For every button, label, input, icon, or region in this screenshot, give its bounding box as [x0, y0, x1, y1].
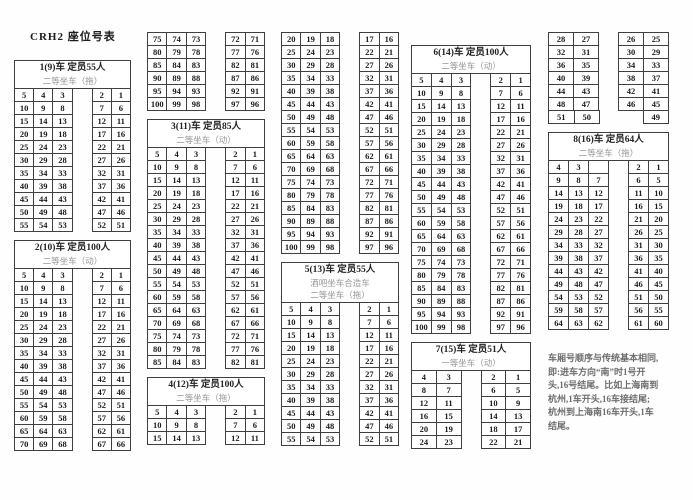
seat-row: 98765	[548, 173, 669, 187]
seat-cell: 40	[281, 84, 301, 98]
seat-cell: 30	[281, 367, 301, 381]
seat-cell: 53	[52, 398, 72, 412]
seat-cell: 66	[379, 162, 399, 176]
seat-cell: 61	[510, 229, 531, 243]
seat-row: 1211109	[411, 396, 531, 410]
seat-cell: 53	[568, 290, 589, 304]
aisle-gap	[206, 329, 226, 343]
seat-row: 9089888786	[147, 71, 265, 85]
seat-cell: 23	[52, 320, 72, 334]
seat-cell: 11	[510, 99, 531, 113]
car-seat-table: 5(13)车 定员55人酒吧坐车合造车二等坐车（拖）54321109876151…	[281, 262, 399, 446]
aisle-gap	[340, 328, 360, 342]
seat-cell: 26	[618, 32, 644, 46]
seat-cell: 48	[568, 277, 589, 291]
seat-cell: 15	[147, 173, 167, 187]
seat-cell: 30	[14, 333, 34, 347]
seat-row: 1514131211	[14, 294, 131, 308]
seat-row: 5049484746	[14, 205, 131, 219]
seat-row: 10099989796	[411, 320, 531, 334]
aisle-gap	[471, 112, 491, 126]
seat-cell: 58	[52, 411, 72, 425]
seat-cell: 59	[33, 411, 53, 425]
seat-row: 2524232221	[147, 199, 265, 213]
seat-row: 1514131211	[147, 173, 265, 187]
aisle-gap	[73, 205, 93, 219]
seat-cell: 20	[14, 307, 34, 321]
seat-cell: 81	[379, 201, 399, 215]
seat-cell: 3	[320, 302, 340, 316]
seat-cell: 18	[52, 127, 72, 141]
seat-cell: 87	[359, 214, 379, 228]
seat-cell: 54	[548, 290, 569, 304]
seat-cell: 48	[320, 110, 340, 124]
seat-row: 109876	[281, 315, 399, 329]
aisle-gap	[462, 396, 482, 410]
seat-cell: 47	[490, 190, 511, 204]
seat-cell: 55	[147, 277, 167, 291]
seat-cell: 11	[379, 328, 399, 342]
seat-cell: 42	[359, 97, 379, 111]
seat-row: 6059585756	[411, 216, 531, 230]
seat-cell: 82	[225, 58, 245, 72]
seat-row: 6463626160	[548, 316, 669, 330]
car-seat-table: 2827262532313029363534334039383744434241…	[548, 32, 669, 124]
seat-cell: 21	[245, 199, 265, 213]
seat-cell: 7	[92, 101, 112, 115]
seat-cell: 62	[225, 303, 245, 317]
seat-cell: 49	[300, 419, 320, 433]
seat-cell: 45	[281, 406, 301, 420]
seat-cell: 10	[281, 315, 301, 329]
seat-cell: 12	[588, 186, 609, 200]
car-seat-table: 7(15)车 定员51人一等坐车（动）432187651211109161514…	[411, 342, 531, 449]
seat-row: 2524232221	[14, 140, 131, 154]
seat-cell: 2	[359, 302, 379, 316]
seat-cell: 60	[411, 216, 432, 230]
seat-cell: 16	[379, 32, 399, 46]
seat-row: 1514131211	[411, 99, 531, 113]
aisle-gap	[206, 199, 226, 213]
seat-cell: 55	[14, 218, 34, 232]
seat-cell: 28	[52, 333, 72, 347]
aisle-gap	[73, 101, 93, 115]
seat-cell: 66	[510, 242, 531, 256]
seat-row: 2928272625	[548, 225, 669, 239]
seat-cell: 30	[147, 212, 167, 226]
aisle-gap	[609, 186, 629, 200]
seat-cell: 24	[431, 125, 452, 139]
seat-cell: 54	[431, 203, 452, 217]
seat-row: 4544434241	[281, 97, 399, 111]
aisle-gap	[609, 199, 629, 213]
empty-cell	[588, 160, 609, 174]
seat-row: 44434241	[548, 84, 669, 98]
seat-cell: 8	[186, 418, 206, 432]
seat-cell: 27	[92, 333, 112, 347]
seat-cell: 92	[225, 84, 245, 98]
seat-cell: 49	[431, 190, 452, 204]
seat-cell: 6	[510, 86, 531, 100]
seat-cell: 29	[33, 333, 53, 347]
seat-cell: 17	[359, 341, 379, 355]
seat-row: 8079787776	[411, 268, 531, 282]
seat-cell: 4	[166, 405, 186, 419]
seat-cell: 43	[568, 264, 589, 278]
seat-row: 2019181716	[281, 341, 399, 355]
seat-cell: 48	[320, 419, 340, 433]
seat-cell: 23	[320, 45, 340, 59]
page-title: CRH2 座位号表	[30, 28, 116, 44]
seat-cell: 10	[648, 186, 669, 200]
seat-row: 2524232221	[14, 320, 131, 334]
seat-cell: 21	[111, 320, 131, 334]
car-title-sub: 二等坐车（动）	[148, 134, 264, 146]
seat-cell: 93	[186, 84, 206, 98]
seat-cell: 46	[628, 277, 649, 291]
aisle-gap	[73, 437, 93, 451]
seat-cell: 51	[245, 277, 265, 291]
seat-cell: 64	[300, 149, 320, 163]
seat-cell: 39	[166, 238, 186, 252]
seat-cell: 46	[618, 97, 644, 111]
seat-cell: 42	[92, 372, 112, 386]
seat-cell: 62	[490, 229, 511, 243]
seat-cell: 61	[628, 316, 649, 330]
seat-row: 4544434241	[14, 192, 131, 206]
seat-row: 4039383736	[14, 179, 131, 193]
seat-cell: 84	[431, 281, 452, 295]
seat-cell: 15	[147, 431, 167, 445]
seat-cell: 86	[510, 294, 531, 308]
seat-cell: 54	[33, 218, 53, 232]
seat-cell: 56	[379, 136, 399, 150]
seat-cell: 29	[300, 58, 320, 72]
seat-cell: 25	[648, 225, 669, 239]
seat-cell: 34	[33, 346, 53, 360]
seat-cell: 25	[14, 140, 34, 154]
seat-cell: 28	[451, 138, 472, 152]
seat-cell: 52	[359, 432, 379, 446]
seat-cell: 38	[618, 71, 644, 85]
seat-cell: 36	[379, 84, 399, 98]
car-title-main: 3(11)车 定员85人	[148, 121, 264, 134]
seat-cell: 50	[14, 385, 34, 399]
seat-cell: 34	[33, 166, 53, 180]
seat-cell: 9	[431, 86, 452, 100]
seat-cell: 8	[186, 160, 206, 174]
seat-cell: 52	[490, 203, 511, 217]
seat-cell: 30	[281, 58, 301, 72]
seat-row: 4039383736	[14, 359, 131, 373]
seat-cell: 22	[359, 45, 379, 59]
seat-cell: 5	[648, 173, 669, 187]
seat-cell: 25	[281, 354, 301, 368]
seat-cell: 48	[451, 190, 472, 204]
seat-cell: 7	[225, 160, 245, 174]
seat-cell: 49	[548, 277, 569, 291]
seat-row: 5554535251	[14, 398, 131, 412]
seat-cell: 76	[245, 342, 265, 356]
seat-cell: 54	[166, 277, 186, 291]
aisle-gap	[206, 84, 226, 98]
seat-cell: 82	[359, 201, 379, 215]
seat-row: 16151413	[411, 409, 531, 423]
seat-cell: 26	[628, 225, 649, 239]
seat-row: 1514131211	[147, 431, 265, 445]
seat-cell: 52	[92, 398, 112, 412]
seat-cell: 11	[628, 186, 649, 200]
seat-cell: 13	[52, 294, 72, 308]
seat-cell: 38	[320, 84, 340, 98]
seat-row: 5049484746	[281, 110, 399, 124]
seat-row: 2019181716	[281, 32, 399, 46]
seat-cell: 16	[411, 409, 437, 423]
seat-cell: 3	[52, 268, 72, 282]
seat-cell: 55	[411, 203, 432, 217]
seat-cell: 94	[166, 84, 186, 98]
legend-note-line: 杭州,1车开头,16车接结尾;	[548, 393, 688, 407]
seat-cell: 6	[379, 315, 399, 329]
aisle-gap	[340, 45, 360, 59]
seat-cell: 33	[186, 225, 206, 239]
seat-cell: 24	[33, 140, 53, 154]
seat-cell: 42	[588, 264, 609, 278]
aisle-gap	[599, 32, 619, 46]
seat-cell: 78	[186, 45, 206, 59]
seat-row: 3534333231	[14, 346, 131, 360]
seat-cell: 1	[245, 147, 265, 161]
seat-cell: 36	[111, 359, 131, 373]
seat-row: 7069686766	[14, 437, 131, 451]
aisle-gap	[73, 140, 93, 154]
seat-cell: 14	[481, 409, 507, 423]
seat-row: 2524232221	[411, 125, 531, 139]
seat-cell: 72	[225, 32, 245, 46]
seat-cell: 42	[618, 84, 644, 98]
seat-cell: 40	[648, 264, 669, 278]
seat-cell: 85	[147, 355, 167, 369]
seat-cell: 6	[111, 101, 131, 115]
seat-cell: 67	[225, 316, 245, 330]
seat-cell: 31	[245, 225, 265, 239]
seat-cell: 35	[14, 166, 34, 180]
seat-row: 9594939291	[147, 84, 265, 98]
seat-cell: 84	[300, 201, 320, 215]
seat-row: 3433323130	[548, 238, 669, 252]
aisle-gap	[73, 346, 93, 360]
car-title-main: 1(9)车 定员55人	[15, 62, 130, 75]
car-seat-table: 4(12)车 定员100人二等坐车（拖）54321109876151413121…	[147, 377, 265, 445]
aisle-gap	[206, 147, 226, 161]
seat-cell: 2	[628, 160, 649, 174]
seat-cell: 83	[186, 58, 206, 72]
seat-cell: 44	[300, 406, 320, 420]
seat-cell: 29	[33, 153, 53, 167]
seat-cell: 43	[52, 372, 72, 386]
seat-cell: 43	[52, 192, 72, 206]
seat-cell: 17	[588, 199, 609, 213]
seat-cell: 46	[510, 190, 531, 204]
seat-cell: 19	[33, 127, 53, 141]
seat-cell: 32	[359, 71, 379, 85]
seat-cell: 44	[33, 372, 53, 386]
seat-cell: 61	[245, 303, 265, 317]
seat-cell: 80	[411, 268, 432, 282]
seat-cell: 6	[245, 418, 265, 432]
seat-cell: 15	[411, 99, 432, 113]
seat-cell: 9	[300, 315, 320, 329]
seat-cell: 45	[648, 277, 669, 291]
aisle-gap	[471, 294, 491, 308]
seat-cell: 67	[490, 242, 511, 256]
aisle-gap	[462, 422, 482, 436]
seat-cell: 75	[411, 255, 432, 269]
aisle-gap	[206, 290, 226, 304]
seat-cell: 14	[300, 328, 320, 342]
seat-cell: 13	[505, 409, 531, 423]
seat-row: 515049	[548, 110, 669, 124]
seat-cell: 35	[147, 225, 167, 239]
seat-cell: 52	[359, 123, 379, 137]
seat-cell: 9	[33, 281, 53, 295]
seat-cell: 11	[111, 294, 131, 308]
seat-cell: 15	[14, 294, 34, 308]
seat-cell: 51	[548, 110, 575, 124]
seat-cell: 38	[320, 393, 340, 407]
seat-cell: 38	[186, 238, 206, 252]
seat-cell: 91	[510, 307, 531, 321]
seat-row: 6564636261	[147, 303, 265, 317]
seat-cell: 7	[436, 383, 462, 397]
seat-cell: 77	[490, 268, 511, 282]
seat-cell: 36	[628, 251, 649, 265]
car-title-sub: 二等坐车（动）	[412, 60, 530, 72]
seat-row: 5049484746	[281, 419, 399, 433]
seat-cell: 1	[648, 160, 669, 174]
seat-row: 54321	[14, 268, 131, 282]
seat-cell: 37	[92, 359, 112, 373]
seat-row: 4321	[548, 160, 669, 174]
seat-cell: 73	[451, 255, 472, 269]
seat-cell: 69	[33, 437, 53, 451]
seat-cell: 93	[451, 307, 472, 321]
seat-cell: 50	[648, 290, 669, 304]
seat-cell: 63	[186, 303, 206, 317]
seat-cell: 53	[451, 203, 472, 217]
seat-cell: 22	[225, 199, 245, 213]
seat-cell: 19	[300, 341, 320, 355]
seat-cell: 8	[568, 173, 589, 187]
seat-cell: 3	[52, 88, 72, 102]
seat-column-1: 1(9)车 定员55人二等坐车（拖）5432110987615141312112…	[14, 60, 131, 451]
seat-cell: 4	[33, 88, 53, 102]
aisle-gap	[73, 192, 93, 206]
seat-cell: 72	[359, 175, 379, 189]
seat-cell: 43	[573, 84, 599, 98]
seat-cell: 25	[281, 45, 301, 59]
legend-note-line: 杭州到上海南16车开头,1车	[548, 406, 688, 420]
seat-cell: 90	[281, 214, 301, 228]
aisle-gap	[340, 240, 360, 254]
seat-cell: 8	[52, 101, 72, 115]
aisle-gap	[471, 125, 491, 139]
seat-cell: 12	[225, 431, 245, 445]
seat-map-page: CRH2 座位号表 1(9)车 定员55人二等坐车（拖）543211098761…	[0, 0, 693, 500]
seat-cell: 42	[92, 192, 112, 206]
seat-row: 3534333231	[281, 380, 399, 394]
seat-cell: 4	[300, 302, 320, 316]
car-title-main: 7(15)车 定员51人	[412, 344, 530, 357]
seat-cell: 62	[588, 316, 609, 330]
seat-row: 6059585756	[281, 136, 399, 150]
seat-row: 5554535251	[281, 432, 399, 446]
aisle-gap	[599, 45, 619, 59]
aisle-gap	[340, 227, 360, 241]
seat-cell: 94	[431, 307, 452, 321]
seat-row: 3534333231	[281, 71, 399, 85]
car-seat-table: 3(11)车 定员85人二等坐车（动）543211098761514131211…	[147, 119, 265, 369]
seat-cell: 86	[379, 214, 399, 228]
seat-row: 1413121110	[548, 186, 669, 200]
seat-cell: 90	[147, 71, 167, 85]
seat-cell: 98	[451, 320, 472, 334]
aisle-gap	[462, 383, 482, 397]
seat-cell: 37	[92, 179, 112, 193]
seat-cell: 96	[245, 97, 265, 111]
seat-cell: 35	[411, 151, 432, 165]
seat-row: 5554535251	[147, 277, 265, 291]
seat-cell: 11	[245, 173, 265, 187]
seat-cell: 82	[225, 355, 245, 369]
seat-cell: 2	[481, 370, 507, 384]
seat-cell: 29	[300, 367, 320, 381]
seat-cell: 28	[320, 367, 340, 381]
seat-cell: 44	[300, 97, 320, 111]
aisle-gap	[471, 177, 491, 191]
seat-cell: 3	[186, 147, 206, 161]
seat-cell: 28	[548, 32, 574, 46]
seat-row: 7069686766	[147, 316, 265, 330]
seat-row: 40393837	[548, 71, 669, 85]
seat-cell: 72	[490, 255, 511, 269]
seat-row: 1514131211	[281, 328, 399, 342]
seat-row: 2524232221	[281, 354, 399, 368]
aisle-gap	[340, 315, 360, 329]
seat-cell: 75	[147, 329, 167, 343]
seat-cell: 7	[225, 418, 245, 432]
aisle-gap	[73, 398, 93, 412]
seat-cell: 7	[359, 315, 379, 329]
seat-row: 4544434241	[411, 177, 531, 191]
seat-cell: 23	[451, 125, 472, 139]
seat-cell: 17	[490, 112, 511, 126]
seat-cell: 47	[92, 385, 112, 399]
seat-cell: 5	[281, 302, 301, 316]
car-title: 8(16)车 定员64人二等坐车（拖）	[548, 132, 669, 161]
seat-row: 4544434241	[147, 251, 265, 265]
seat-row: 8079787776	[147, 45, 265, 59]
seat-cell: 75	[281, 175, 301, 189]
seat-cell: 43	[320, 406, 340, 420]
seat-cell: 60	[281, 136, 301, 150]
aisle-gap	[206, 160, 226, 174]
aisle-gap	[73, 372, 93, 386]
aisle-gap	[73, 281, 93, 295]
aisle-gap	[73, 218, 93, 232]
seat-cell: 74	[166, 329, 186, 343]
seat-cell: 57	[225, 290, 245, 304]
